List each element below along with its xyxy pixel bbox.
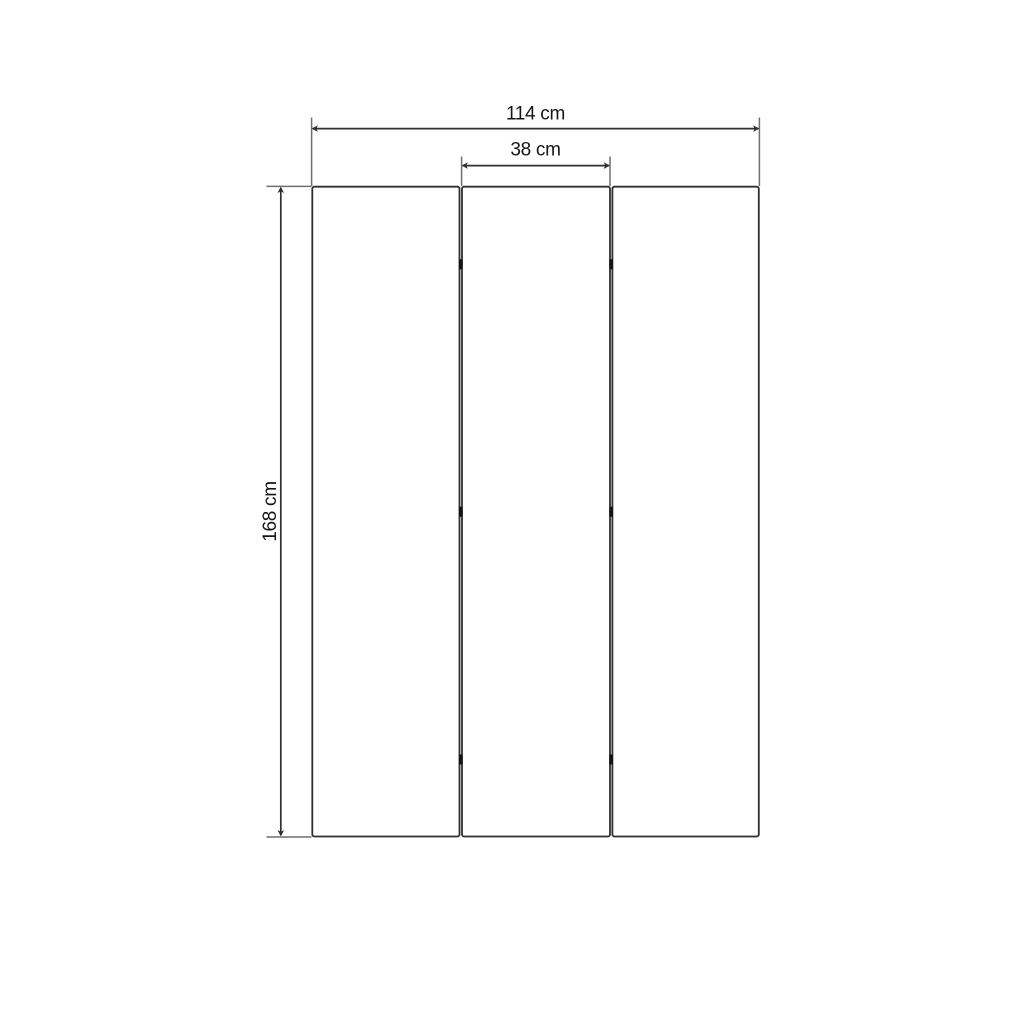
svg-text:114 cm: 114 cm <box>506 103 565 124</box>
svg-text:38 cm: 38 cm <box>510 140 560 161</box>
svg-text:168 cm: 168 cm <box>260 481 281 542</box>
